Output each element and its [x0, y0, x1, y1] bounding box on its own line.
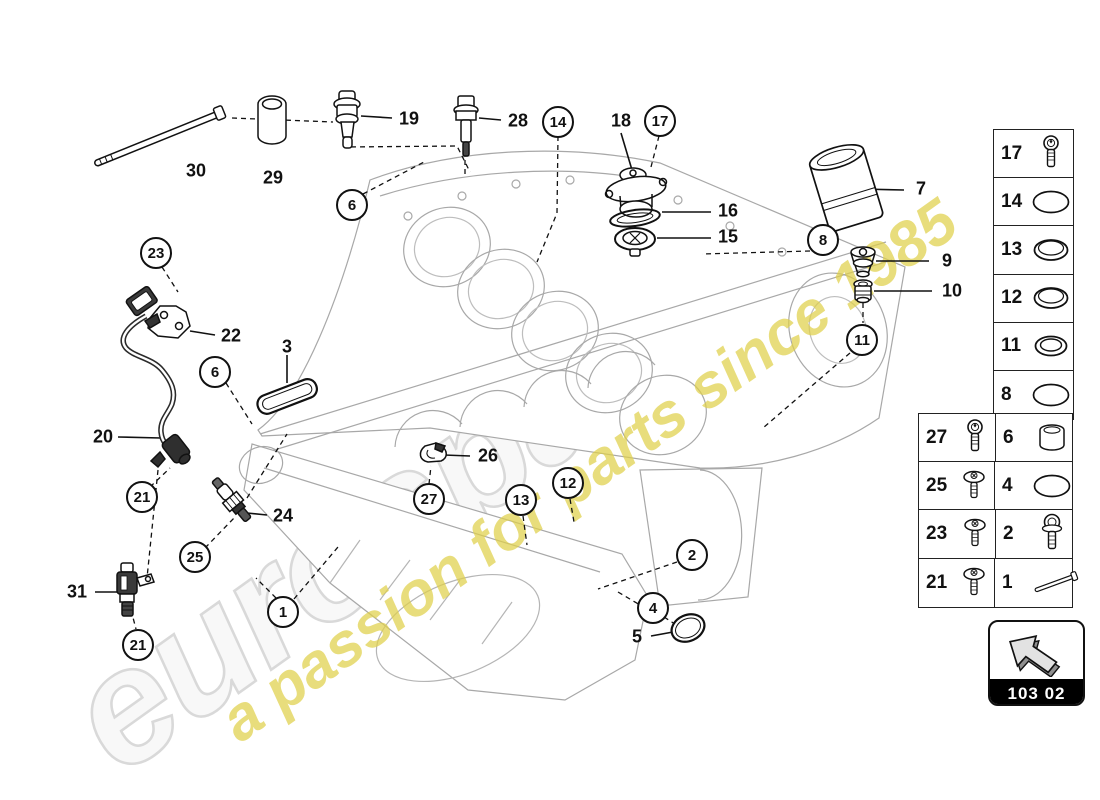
- socket-bolt-icon: [1031, 134, 1071, 174]
- part-label-24: 24: [273, 506, 293, 527]
- seal-ring-icon: [1029, 328, 1073, 364]
- legend-cell-6[interactable]: 6: [996, 414, 1072, 461]
- pan-screw-icon: [955, 514, 995, 554]
- legend-cell-1[interactable]: 1: [995, 559, 1082, 607]
- legend-icon-cell: [954, 418, 995, 458]
- part-bracket-22: [145, 306, 190, 338]
- legend-num: 21: [919, 572, 954, 594]
- part-cap-29: [258, 96, 286, 144]
- legend-num: 17: [994, 143, 1029, 165]
- part-label-31: 31: [67, 582, 87, 603]
- legend-num: 6: [996, 427, 1031, 449]
- legend-num: 25: [919, 475, 954, 497]
- part-sensor-19: [334, 91, 360, 148]
- legend-num: 27: [919, 427, 954, 449]
- legend-grid-row: 232: [919, 510, 1072, 558]
- callout-4[interactable]: 4: [637, 592, 669, 624]
- callout-14[interactable]: 14: [542, 106, 574, 138]
- legend-row-14[interactable]: 14: [994, 178, 1073, 226]
- legend-num: 8: [994, 384, 1029, 406]
- legend-row-8[interactable]: 8: [994, 371, 1073, 419]
- callout-25[interactable]: 25: [179, 541, 211, 573]
- callout-1[interactable]: 1: [267, 596, 299, 628]
- part-sensor-28: [454, 96, 478, 156]
- o-ring-icon: [1029, 185, 1073, 219]
- callout-21[interactable]: 21: [126, 481, 158, 513]
- legend-icon-cell: [1029, 134, 1073, 174]
- legend-icon-cell: [1029, 185, 1073, 219]
- part-label-26: 26: [478, 446, 498, 467]
- legend-icon-cell: [1030, 469, 1074, 503]
- legend-grid-row: 254: [919, 462, 1072, 510]
- back-arrow-icon: [990, 622, 1083, 679]
- legend-icon-cell: [954, 466, 994, 506]
- legend-icon-cell: [1029, 280, 1073, 316]
- part-label-28: 28: [508, 111, 528, 132]
- part-canister-7: [807, 140, 884, 233]
- part-label-5: 5: [632, 627, 642, 648]
- part-label-10: 10: [942, 281, 962, 302]
- callout-6[interactable]: 6: [199, 356, 231, 388]
- legend-row-13[interactable]: 13: [994, 226, 1073, 274]
- seal-ring-icon: [1029, 280, 1073, 316]
- legend-row-12[interactable]: 12: [994, 275, 1073, 323]
- legend-cell-4[interactable]: 4: [995, 462, 1074, 509]
- legend-column: 17141312118: [993, 129, 1074, 420]
- part-label-3: 3: [282, 337, 292, 358]
- callout-23[interactable]: 23: [140, 237, 172, 269]
- part-label-16: 16: [718, 201, 738, 222]
- legend-cell-21[interactable]: 21: [919, 559, 995, 607]
- callout-27[interactable]: 27: [413, 483, 445, 515]
- legend-icon-cell: [1031, 420, 1072, 456]
- legend-grid: 276254232211: [918, 413, 1073, 608]
- part-label-30: 30: [186, 161, 206, 182]
- legend-num: 1: [995, 572, 1030, 594]
- legend-icon-cell: [1030, 565, 1082, 601]
- legend-cell-2[interactable]: 2: [996, 510, 1072, 557]
- page-code-box[interactable]: 103 02: [988, 620, 1085, 706]
- part-cap-5: [667, 609, 709, 647]
- parts-diagram-page: eurospares: [0, 0, 1100, 800]
- legend-cell-25[interactable]: 25: [919, 462, 995, 509]
- part-label-20: 20: [93, 427, 113, 448]
- part-clip-26: [420, 443, 446, 462]
- part-label-19: 19: [399, 109, 419, 130]
- part-stud-30: [92, 105, 226, 169]
- legend-grid-row: 211: [919, 559, 1072, 607]
- legend-num: 14: [994, 191, 1029, 213]
- legend-row-17[interactable]: 17: [994, 130, 1073, 178]
- part-label-15: 15: [718, 227, 738, 248]
- socket-bolt-icon: [955, 418, 995, 458]
- legend-cell-27[interactable]: 27: [919, 414, 996, 461]
- legend-num: 23: [919, 523, 954, 545]
- legend-icon-cell: [1029, 232, 1073, 268]
- part-label-7: 7: [916, 179, 926, 200]
- flange-bolt-icon: [1032, 513, 1072, 555]
- long-stud-icon: [1030, 565, 1082, 601]
- part-plug-10: [854, 280, 872, 303]
- legend-icon-cell: [954, 563, 994, 603]
- o-ring-icon: [1029, 378, 1073, 412]
- legend-num: 11: [994, 335, 1029, 357]
- legend-icon-cell: [1029, 328, 1073, 364]
- pan-screw-icon: [954, 466, 994, 506]
- legend-row-11[interactable]: 11: [994, 323, 1073, 371]
- legend-icon-cell: [1031, 513, 1072, 555]
- legend-num: 12: [994, 287, 1029, 309]
- part-label-9: 9: [942, 251, 952, 272]
- page-code-label: 103 02: [990, 679, 1083, 706]
- callout-11[interactable]: 11: [846, 324, 878, 356]
- seal-ring-icon: [1029, 232, 1073, 268]
- callout-6[interactable]: 6: [336, 189, 368, 221]
- callout-12[interactable]: 12: [552, 467, 584, 499]
- o-ring-icon: [1030, 469, 1074, 503]
- legend-num: 4: [995, 475, 1030, 497]
- legend-cell-23[interactable]: 23: [919, 510, 996, 557]
- legend-num: 2: [996, 523, 1031, 545]
- part-label-22: 22: [221, 326, 241, 347]
- callout-21[interactable]: 21: [122, 629, 154, 661]
- part-label-29: 29: [263, 168, 283, 189]
- legend-grid-row: 276: [919, 414, 1072, 462]
- part-label-18: 18: [611, 111, 631, 132]
- legend-num: 13: [994, 239, 1029, 261]
- callout-17[interactable]: 17: [644, 105, 676, 137]
- legend-icon-cell: [954, 514, 995, 554]
- callout-13[interactable]: 13: [505, 484, 537, 516]
- sleeve-icon: [1032, 420, 1072, 456]
- legend-icon-cell: [1029, 378, 1073, 412]
- callout-8[interactable]: 8: [807, 224, 839, 256]
- callout-2[interactable]: 2: [676, 539, 708, 571]
- pan-screw-icon: [954, 563, 994, 603]
